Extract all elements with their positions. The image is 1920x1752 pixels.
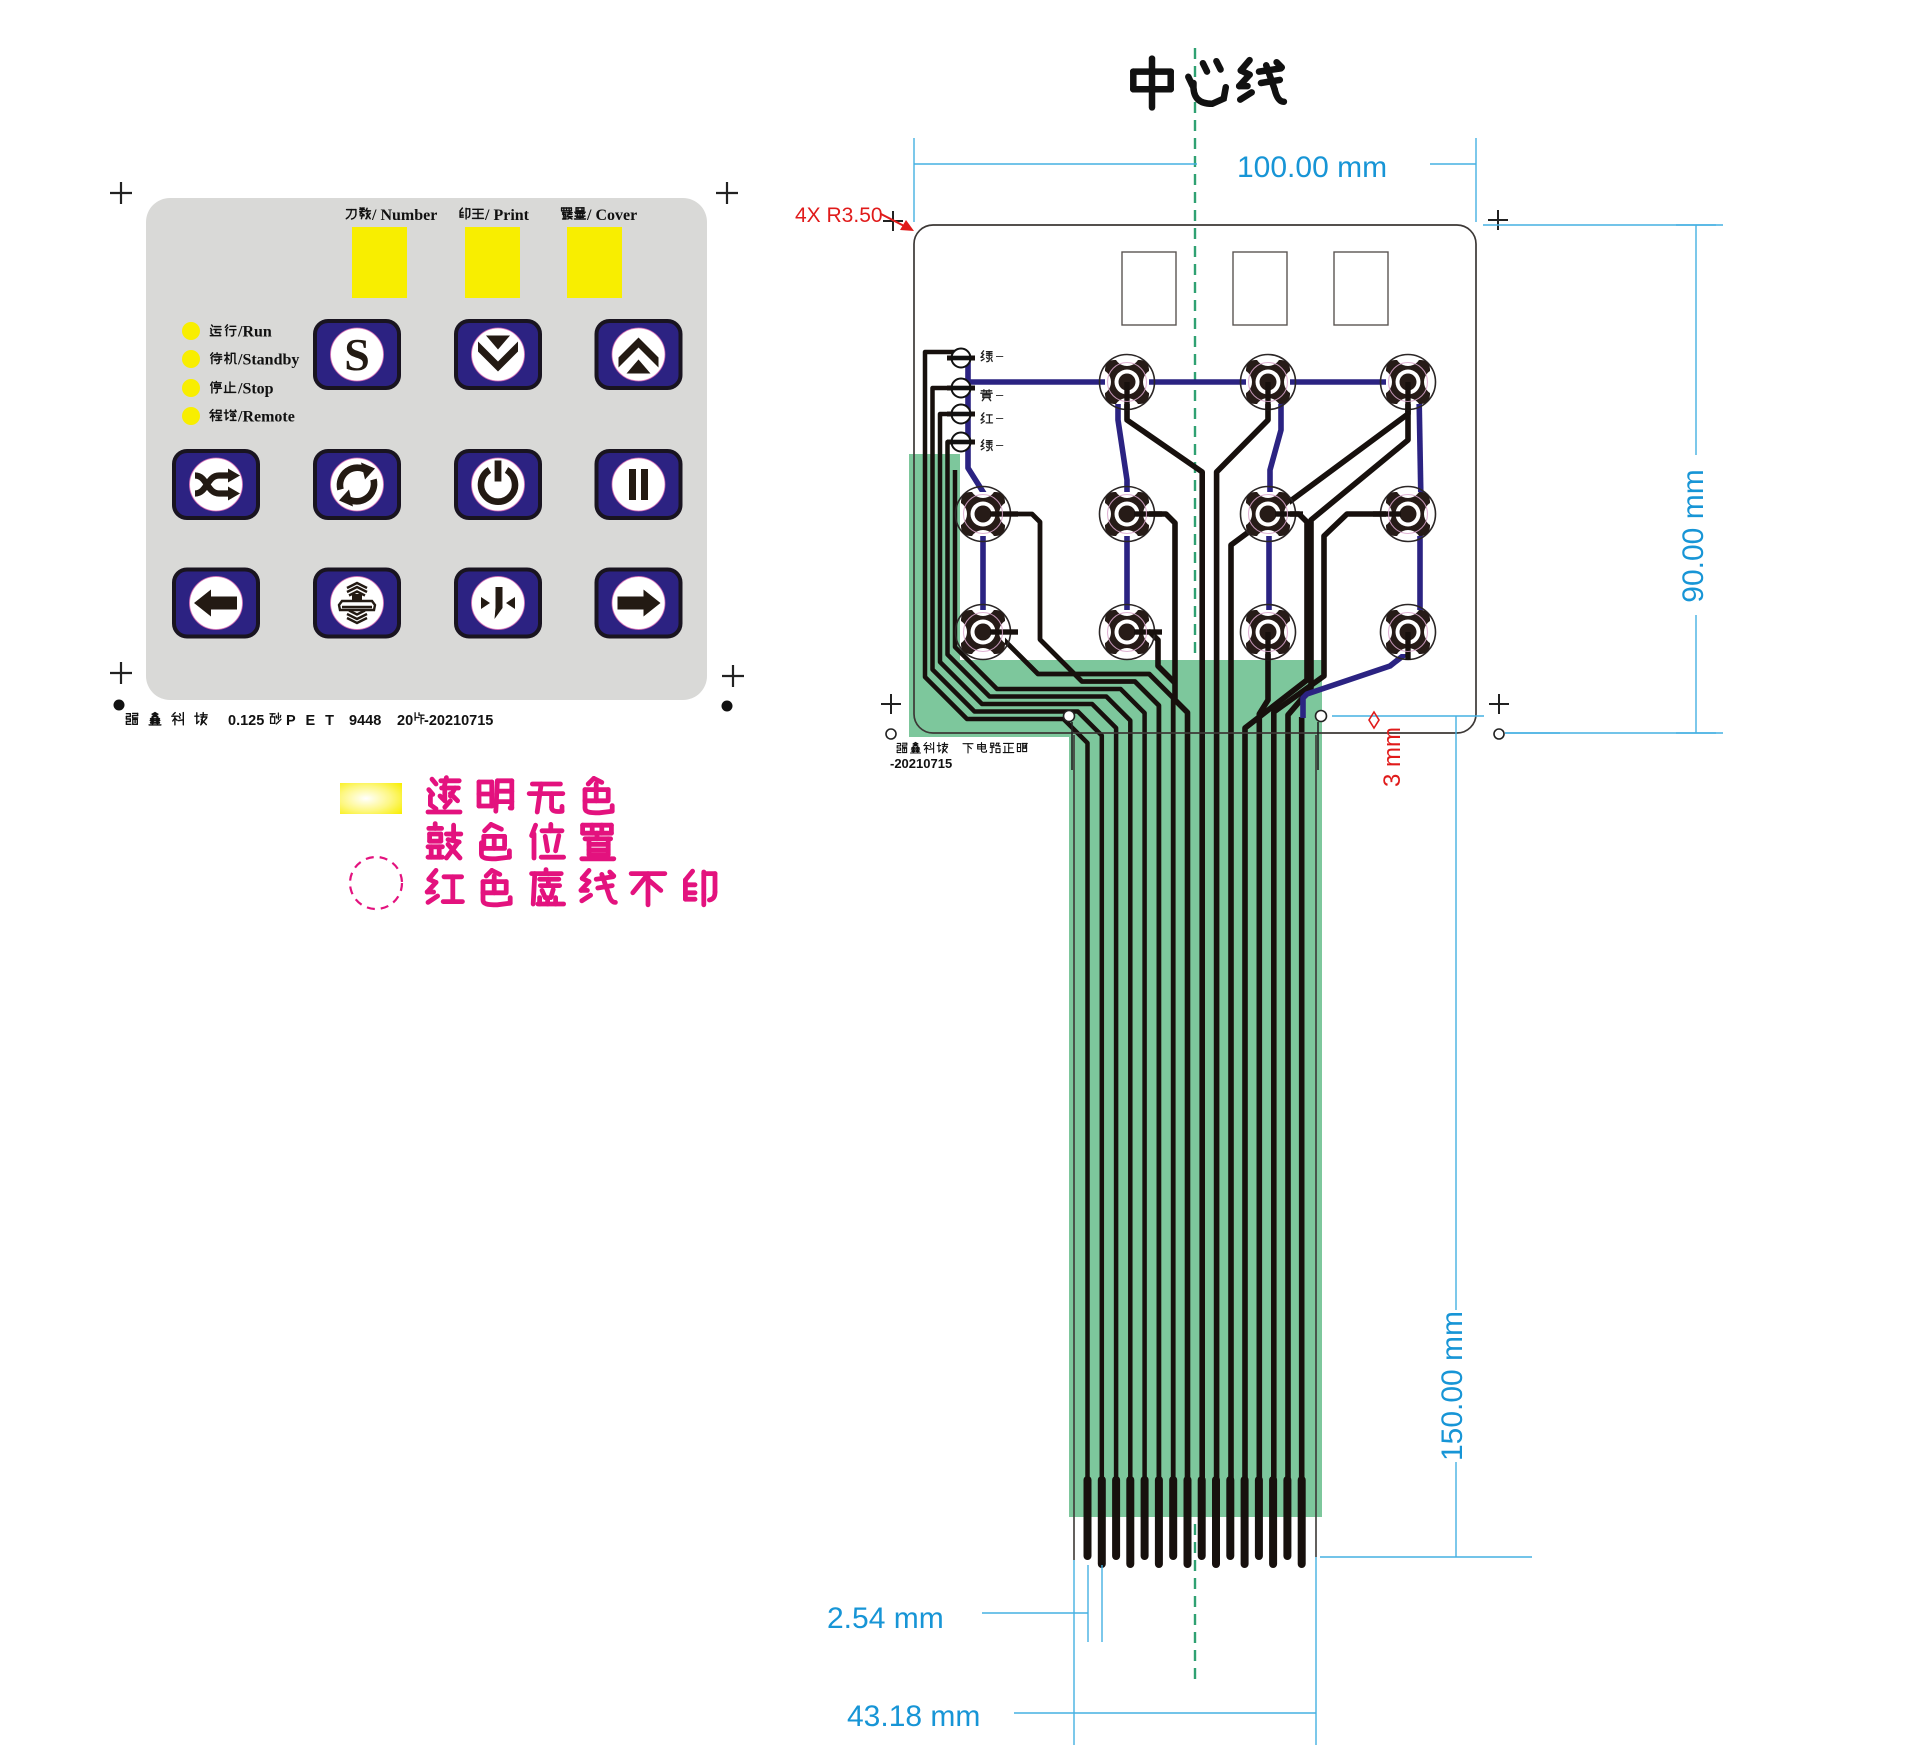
svg-text:4X R3.50: 4X R3.50 bbox=[795, 204, 883, 227]
svg-text:–: – bbox=[996, 348, 1004, 363]
svg-text:20: 20 bbox=[397, 713, 413, 729]
svg-text:-20210715: -20210715 bbox=[890, 756, 952, 771]
svg-text:/Run: /Run bbox=[237, 324, 272, 341]
svg-text:/Remote: /Remote bbox=[237, 409, 295, 426]
svg-text:–: – bbox=[996, 410, 1004, 425]
svg-text:/Standby: /Standby bbox=[237, 352, 299, 369]
svg-text:90.00 mm: 90.00 mm bbox=[1677, 469, 1710, 602]
svg-text:150.00 mm: 150.00 mm bbox=[1436, 1311, 1469, 1461]
svg-text:9448: 9448 bbox=[349, 713, 381, 729]
svg-text:/ Cover: / Cover bbox=[586, 207, 637, 224]
svg-text:S: S bbox=[344, 329, 370, 380]
svg-text:100.00 mm: 100.00 mm bbox=[1237, 151, 1387, 184]
svg-text:0.125: 0.125 bbox=[228, 713, 264, 729]
svg-text:/ Number: / Number bbox=[371, 207, 437, 224]
svg-text:/Stop: /Stop bbox=[237, 381, 274, 398]
svg-text:3 mm: 3 mm bbox=[1379, 727, 1406, 787]
svg-text:43.18 mm: 43.18 mm bbox=[847, 1700, 980, 1733]
svg-text:–: – bbox=[996, 387, 1004, 402]
svg-text:/ Print: / Print bbox=[484, 207, 530, 224]
svg-text:P E T: P E T bbox=[286, 713, 337, 729]
svg-text:2.54 mm: 2.54 mm bbox=[827, 1602, 944, 1635]
svg-text:-20210715: -20210715 bbox=[424, 713, 493, 729]
svg-text:–: – bbox=[996, 437, 1004, 452]
